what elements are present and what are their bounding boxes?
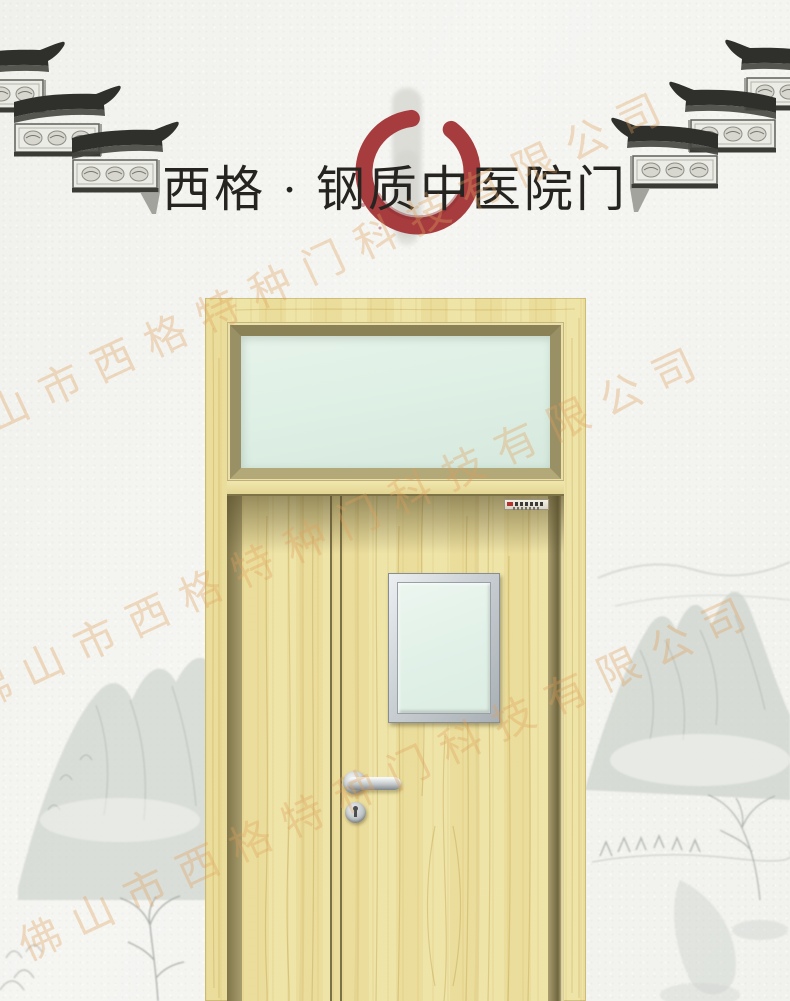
- brand-sticker-subtext-marks: [513, 507, 539, 510]
- transom-glass: [241, 336, 550, 468]
- lever-handle-icon: [347, 777, 401, 790]
- keyhole-escutcheon: [345, 802, 366, 823]
- product-poster: 西格 · 钢质中医院门 佛山市西格特种门科技有限公司 佛山市西格特种门科技有限公…: [0, 0, 790, 1001]
- door-leaves: [227, 496, 564, 1001]
- transom-window: [227, 322, 564, 482]
- door-photo: [205, 298, 586, 1001]
- brand-sticker: [504, 499, 549, 510]
- transom-frame-bevel: [230, 325, 561, 479]
- transom-rail: [227, 480, 564, 496]
- vision-panel-glass: [397, 582, 491, 714]
- keyhole-icon: [353, 806, 358, 811]
- page-title: 西格 · 钢质中医院门: [0, 150, 790, 221]
- transom-frame-highlight: [228, 323, 563, 481]
- door-inner: [227, 322, 564, 1001]
- brand-sticker-marks: [507, 502, 545, 506]
- vision-panel: [388, 573, 500, 723]
- door-leaf-grain: [227, 496, 564, 1001]
